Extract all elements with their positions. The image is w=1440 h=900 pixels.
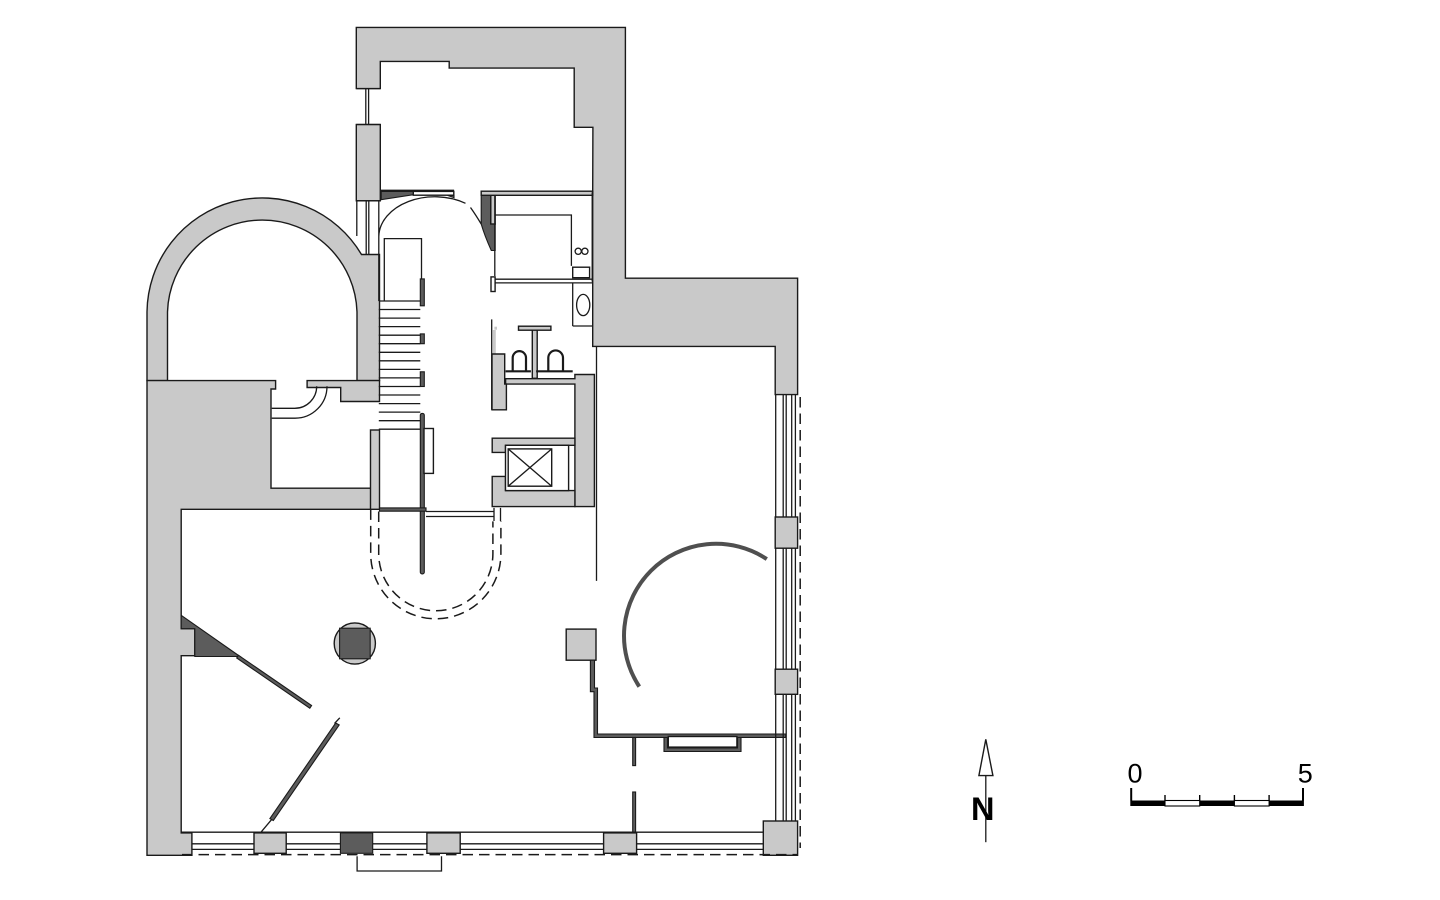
- svg-text:5: 5: [1298, 759, 1313, 789]
- svg-text:0: 0: [1128, 759, 1143, 789]
- svg-text:N: N: [971, 791, 994, 827]
